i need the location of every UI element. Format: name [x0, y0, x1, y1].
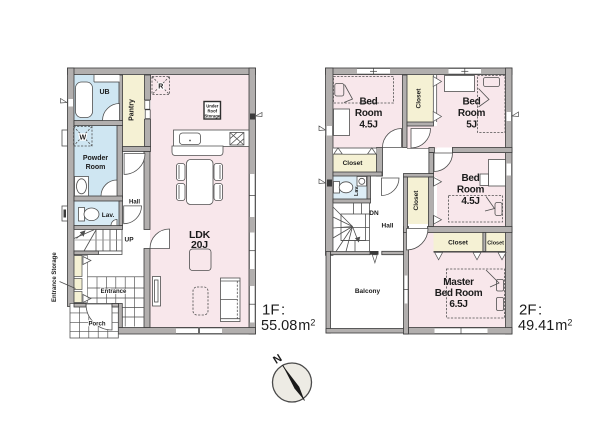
- svg-text:Entrance Storage: Entrance Storage: [52, 252, 58, 302]
- svg-text:Room: Room: [457, 185, 485, 196]
- svg-text:4.5J: 4.5J: [359, 120, 377, 131]
- svg-text:Lav.: Lav.: [102, 212, 115, 219]
- svg-text:Bed Room: Bed Room: [435, 288, 483, 299]
- svg-text:4.5J: 4.5J: [461, 196, 479, 207]
- svg-text:1F:: 1F:: [262, 302, 285, 319]
- svg-text:UB: UB: [99, 89, 109, 96]
- svg-text:Master: Master: [443, 277, 474, 288]
- svg-text:Bed: Bed: [463, 97, 481, 108]
- svg-text:Closet: Closet: [448, 240, 469, 247]
- svg-text:55.08m2: 55.08m2: [261, 318, 315, 335]
- svg-text:Entrance: Entrance: [101, 289, 127, 295]
- svg-text:Lav.: Lav.: [354, 185, 360, 196]
- svg-text:49.41m2: 49.41m2: [518, 318, 572, 335]
- svg-text:6.5J: 6.5J: [449, 299, 467, 310]
- svg-text:Balcony: Balcony: [355, 288, 381, 295]
- svg-text:Hall: Hall: [382, 223, 394, 230]
- svg-text:Storage: Storage: [205, 114, 221, 119]
- svg-text:Pantry: Pantry: [129, 99, 136, 121]
- svg-text:Closet: Closet: [487, 241, 504, 247]
- svg-text:Closet: Closet: [343, 160, 364, 167]
- svg-text:Porch: Porch: [88, 322, 105, 328]
- svg-text:Bed: Bed: [360, 97, 378, 108]
- svg-text:W: W: [79, 134, 86, 141]
- svg-text:5J: 5J: [466, 120, 477, 131]
- svg-text:Room: Room: [458, 108, 486, 119]
- svg-text:Closet: Closet: [416, 88, 423, 109]
- svg-text:UP: UP: [125, 237, 135, 244]
- svg-text:Closet: Closet: [413, 190, 420, 211]
- svg-text:Room: Room: [355, 108, 383, 119]
- svg-text:DN: DN: [369, 210, 379, 217]
- svg-text:Bed: Bed: [462, 173, 480, 184]
- svg-text:Hall: Hall: [129, 200, 140, 206]
- svg-text:2F:: 2F:: [519, 302, 542, 319]
- svg-text:Powder: Powder: [83, 155, 109, 162]
- svg-text:R: R: [158, 83, 163, 90]
- svg-text:Room: Room: [86, 164, 106, 171]
